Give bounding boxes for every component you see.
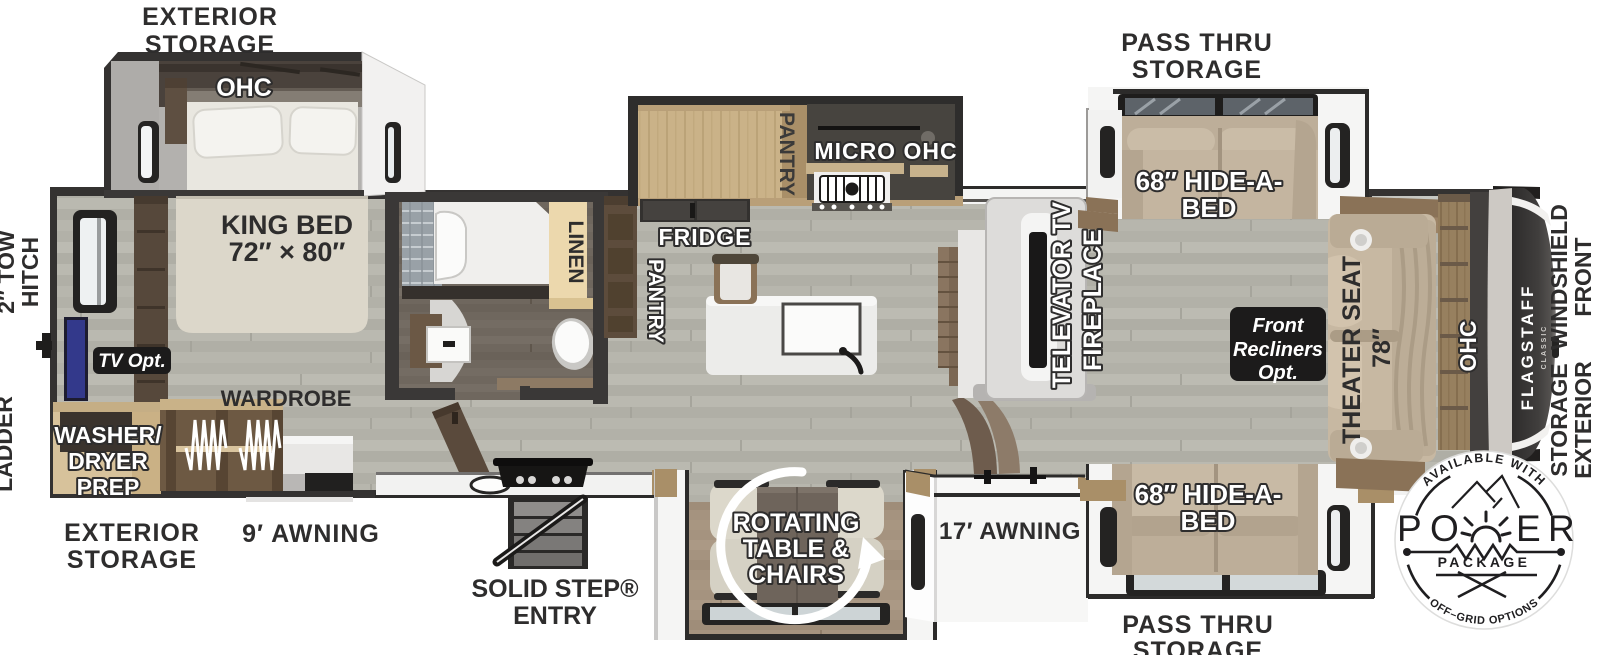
svg-text:PANTRY: PANTRY — [644, 259, 667, 343]
svg-text:THEATER SEAT: THEATER SEAT — [1338, 256, 1366, 444]
svg-text:PACKAGE: PACKAGE — [1438, 554, 1531, 570]
svg-text:LINEN: LINEN — [564, 221, 587, 284]
svg-text:STORAGE: STORAGE — [1546, 363, 1572, 476]
svg-text:MICRO OHC: MICRO OHC — [814, 138, 957, 164]
svg-text:PASS THRU: PASS THRU — [1121, 29, 1273, 57]
svg-text:EXTERIOR: EXTERIOR — [64, 519, 200, 547]
svg-text:P: P — [1397, 508, 1422, 549]
svg-text:EXTERIOR: EXTERIOR — [142, 3, 278, 31]
svg-text:9′ AWNING: 9′ AWNING — [242, 520, 380, 548]
svg-text:Front: Front — [1252, 315, 1304, 337]
svg-text:Opt.: Opt. — [1258, 362, 1298, 384]
svg-text:TV Opt.: TV Opt. — [98, 351, 166, 372]
svg-text:78″: 78″ — [1368, 328, 1396, 368]
svg-text:BED: BED — [1181, 506, 1236, 536]
svg-text:CHAIRS: CHAIRS — [748, 561, 844, 589]
svg-text:17′ AWNING: 17′ AWNING — [939, 518, 1081, 545]
svg-text:E: E — [1516, 508, 1541, 549]
svg-text:R: R — [1548, 508, 1575, 549]
svg-text:ROTATING: ROTATING — [733, 509, 860, 537]
svg-text:STORAGE: STORAGE — [1132, 56, 1262, 84]
svg-text:FRONT: FRONT — [1570, 237, 1596, 316]
svg-text:STORAGE: STORAGE — [67, 546, 197, 574]
svg-text:SOLID STEP®: SOLID STEP® — [471, 575, 639, 603]
svg-text:O: O — [1430, 508, 1459, 549]
svg-text:FLAGSTAFF: FLAGSTAFF — [1518, 284, 1537, 411]
svg-text:Recliners: Recliners — [1233, 339, 1323, 361]
svg-text:PASS THRU: PASS THRU — [1122, 611, 1274, 639]
svg-text:STORAGE: STORAGE — [145, 31, 275, 59]
svg-text:TELEVATOR TV: TELEVATOR TV — [1048, 202, 1076, 388]
svg-text:68″ HIDE-A-: 68″ HIDE-A- — [1135, 479, 1282, 509]
svg-text:DRYER: DRYER — [68, 448, 148, 474]
svg-text:EXTERIOR: EXTERIOR — [1570, 361, 1596, 479]
svg-text:TABLE &: TABLE & — [743, 535, 849, 563]
svg-text:PANTRY: PANTRY — [775, 112, 798, 196]
svg-text:LADDER: LADDER — [0, 396, 17, 492]
svg-text:WASHER/: WASHER/ — [54, 422, 162, 448]
svg-text:BED: BED — [1182, 193, 1237, 223]
svg-text:KING BED: KING BED — [221, 210, 353, 240]
svg-text:OHC: OHC — [216, 74, 272, 102]
svg-text:68″ HIDE-A-: 68″ HIDE-A- — [1136, 166, 1283, 196]
svg-text:WINDSHIELD: WINDSHIELD — [1546, 204, 1572, 350]
svg-text:FIREPLACE: FIREPLACE — [1079, 229, 1107, 371]
svg-text:72″ × 80″: 72″ × 80″ — [229, 237, 346, 267]
svg-text:FRIDGE: FRIDGE — [659, 224, 752, 250]
svg-text:ENTRY: ENTRY — [513, 602, 597, 630]
svg-text:PREP: PREP — [77, 474, 140, 500]
svg-text:WARDROBE: WARDROBE — [221, 386, 352, 411]
svg-text:OHC: OHC — [1455, 320, 1481, 371]
svg-text:HITCH: HITCH — [17, 237, 43, 307]
svg-text:STORAGE: STORAGE — [1133, 637, 1263, 655]
